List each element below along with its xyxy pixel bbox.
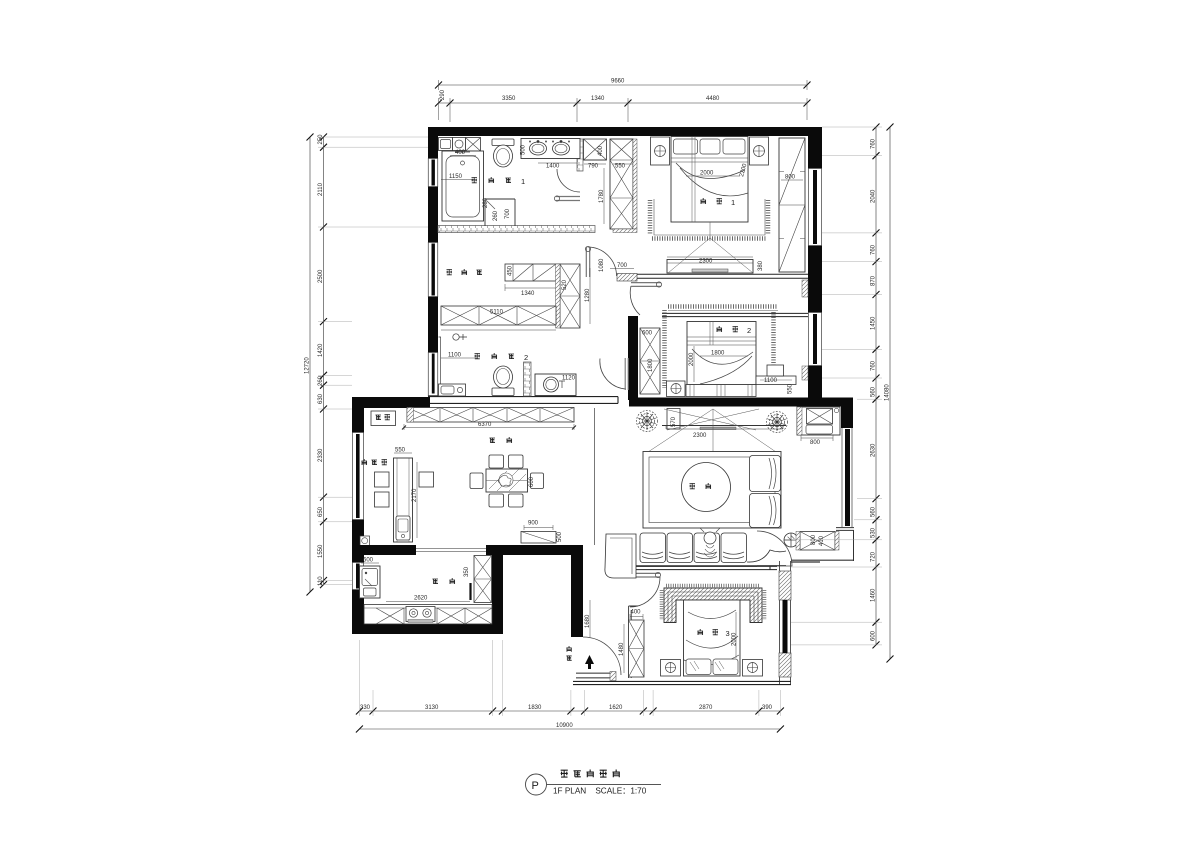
svg-text:1420: 1420 <box>318 343 324 357</box>
svg-text:760: 760 <box>871 138 877 149</box>
svg-text:1780: 1780 <box>599 189 605 203</box>
svg-text:2500: 2500 <box>318 269 324 283</box>
svg-text:3350: 3350 <box>502 96 516 102</box>
svg-text:700: 700 <box>617 263 628 269</box>
svg-text:9660: 9660 <box>611 79 625 85</box>
svg-text:530: 530 <box>871 527 877 538</box>
svg-text:2: 2 <box>747 326 751 335</box>
svg-text:1680: 1680 <box>585 614 591 628</box>
svg-text:1F PLAN SCALE：1:70: 1F PLAN SCALE：1:70 <box>553 787 647 796</box>
svg-text:2170: 2170 <box>412 488 418 502</box>
svg-text:700: 700 <box>505 208 511 219</box>
svg-text:260: 260 <box>493 210 499 221</box>
svg-text:1150: 1150 <box>449 174 463 180</box>
svg-text:3: 3 <box>726 629 730 638</box>
svg-text:400: 400 <box>455 150 466 156</box>
svg-text:4480: 4480 <box>706 96 720 102</box>
svg-text:1100: 1100 <box>448 353 462 359</box>
svg-text:1340: 1340 <box>521 291 535 297</box>
svg-text:550: 550 <box>788 383 794 394</box>
svg-text:600: 600 <box>871 630 877 641</box>
svg-text:800: 800 <box>785 175 796 181</box>
svg-text:1100: 1100 <box>764 378 778 384</box>
svg-text:400: 400 <box>598 145 604 156</box>
svg-text:410: 410 <box>819 535 825 546</box>
svg-text:1620: 1620 <box>609 705 623 711</box>
svg-text:2: 2 <box>524 353 528 362</box>
svg-text:870: 870 <box>871 275 877 286</box>
svg-text:520: 520 <box>562 279 568 290</box>
svg-text:600: 600 <box>642 331 653 337</box>
svg-text:1550: 1550 <box>318 544 324 558</box>
svg-text:330: 330 <box>360 705 371 711</box>
svg-text:1400: 1400 <box>546 164 560 170</box>
svg-text:2300: 2300 <box>699 259 713 265</box>
svg-text:1830: 1830 <box>528 705 542 711</box>
svg-text:1800: 1800 <box>711 351 725 357</box>
svg-text:2870: 2870 <box>699 705 713 711</box>
svg-text:280: 280 <box>483 197 489 208</box>
svg-text:790: 790 <box>588 164 599 170</box>
svg-text:380: 380 <box>758 260 764 271</box>
svg-text:450: 450 <box>508 265 514 276</box>
svg-text:3130: 3130 <box>425 705 439 711</box>
svg-text:1: 1 <box>521 177 525 186</box>
svg-text:650: 650 <box>318 506 324 517</box>
svg-text:260: 260 <box>318 375 324 386</box>
svg-text:600: 600 <box>529 476 535 487</box>
svg-text:1120: 1120 <box>562 376 576 382</box>
svg-text:1340: 1340 <box>591 96 605 102</box>
svg-text:760: 760 <box>871 244 877 255</box>
svg-text:560: 560 <box>871 386 877 397</box>
svg-text:2000: 2000 <box>689 352 695 366</box>
svg-text:720: 720 <box>871 551 877 562</box>
svg-text:2040: 2040 <box>871 189 877 203</box>
svg-text:2000: 2000 <box>732 632 738 646</box>
svg-text:1460: 1460 <box>871 588 877 602</box>
svg-text:14080: 14080 <box>885 384 891 401</box>
svg-text:2330: 2330 <box>318 448 324 462</box>
svg-text:290: 290 <box>440 89 446 100</box>
svg-text:2630: 2630 <box>871 443 877 457</box>
svg-text:10900: 10900 <box>556 723 573 729</box>
svg-text:2620: 2620 <box>414 596 428 602</box>
svg-text:560: 560 <box>871 506 877 517</box>
svg-text:2000: 2000 <box>700 171 714 177</box>
svg-text:6370: 6370 <box>478 422 492 428</box>
svg-text:630: 630 <box>318 393 324 404</box>
svg-text:1080: 1080 <box>599 258 605 272</box>
svg-text:12720: 12720 <box>305 357 311 374</box>
svg-text:P: P <box>532 780 539 792</box>
svg-text:600: 600 <box>363 558 374 564</box>
svg-text:350: 350 <box>464 566 470 577</box>
svg-text:1280: 1280 <box>585 288 591 302</box>
svg-text:900: 900 <box>528 521 539 527</box>
svg-text:1450: 1450 <box>871 316 877 330</box>
svg-text:1480: 1480 <box>619 642 625 656</box>
svg-text:500: 500 <box>557 531 563 542</box>
svg-text:550: 550 <box>615 164 626 170</box>
svg-text:760: 760 <box>871 360 877 371</box>
svg-text:5110: 5110 <box>490 310 504 316</box>
svg-text:250: 250 <box>318 134 324 145</box>
svg-text:550: 550 <box>395 448 406 454</box>
svg-text:110: 110 <box>318 576 324 586</box>
svg-text:2300: 2300 <box>693 433 707 439</box>
svg-text:800: 800 <box>810 440 821 446</box>
svg-text:2110: 2110 <box>318 182 324 196</box>
svg-text:1: 1 <box>731 198 735 207</box>
svg-text:1800: 1800 <box>648 358 654 372</box>
svg-text:400: 400 <box>631 610 642 616</box>
svg-text:500: 500 <box>521 144 527 155</box>
svg-text:390: 390 <box>762 705 773 711</box>
